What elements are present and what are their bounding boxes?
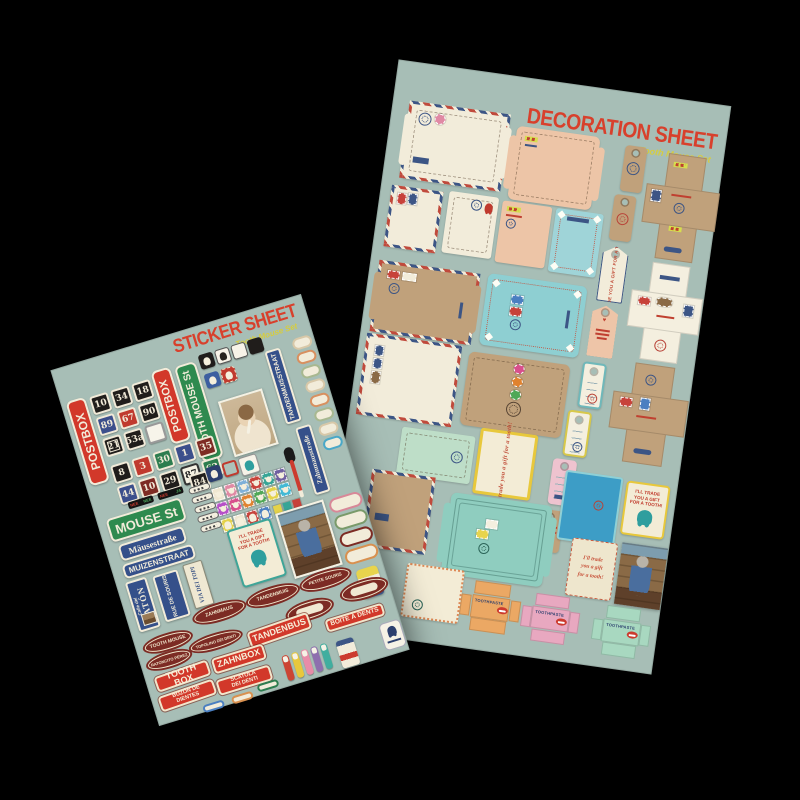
gift-tag-peach: ♥: [586, 304, 619, 359]
tooth-icon: [636, 509, 653, 526]
toothbrush-sticker-row: [281, 643, 334, 682]
number-plate-sticker: 18: [131, 379, 155, 403]
number-plate-sticker: 10: [89, 392, 113, 416]
postmark-stamp-icon: [388, 282, 400, 294]
stamp-icon: [509, 306, 522, 317]
red-frame-sticker: [221, 459, 240, 478]
stamp-icon: [638, 296, 651, 306]
tooth-sticker-teal: [237, 453, 261, 477]
box-template-kraft: [637, 150, 725, 265]
toothpaste-box-orange: TOOTHPASTE: [457, 579, 523, 637]
toothpaste-box-mint: TOOTHPASTE: [589, 603, 653, 661]
number-plate-sticker: 67: [116, 406, 140, 430]
postmark-stamp-icon: [509, 319, 521, 331]
banner-icon: [387, 638, 401, 644]
postmark-stamp-icon: [626, 161, 641, 176]
postmark-stamp-red-icon: [593, 500, 604, 511]
corner-diamond-icon: [573, 290, 581, 298]
plaque-tandenmuis: TANDENMUIS: [246, 581, 300, 611]
number-plate-sticker: 90: [137, 400, 161, 424]
box-flap: [508, 600, 521, 622]
box-template-cream: [622, 259, 707, 366]
baby-photo-sticker: [218, 388, 279, 457]
box-template-kraft-2: [604, 360, 693, 470]
heart-icon: ♥: [591, 316, 618, 326]
envelope-teal-dotted: [479, 273, 588, 358]
blank-square-sticker: [230, 341, 249, 360]
card-cream-yellow-border: I'll trade you a gift for a tooth!: [472, 427, 539, 500]
toothbrush-stamp-icon: [565, 310, 570, 328]
product-image: DECORATION SHEET Tooth Mouse Set: [0, 0, 800, 800]
border-line: [451, 502, 543, 577]
number-plate-sticker: 3: [131, 454, 155, 478]
mouse-stamp-sticker: [224, 483, 238, 499]
toothbrush-stamp-icon: [525, 144, 537, 148]
corner-diamond-icon: [485, 332, 493, 340]
number-plate-sticker: [144, 421, 168, 445]
mouse-stamp-sticker: [265, 486, 279, 502]
number-plate-sticker: 35: [194, 435, 218, 459]
postmark-stamp-icon: [505, 401, 522, 418]
stamp-icon: [374, 345, 384, 356]
mouse-stamp-sticker: [253, 489, 267, 505]
stamp-icon: [372, 358, 382, 369]
envelope-peach: [507, 126, 600, 211]
envelope-kraft-airmail: [369, 260, 480, 345]
tooth-mouse-photo: [614, 542, 668, 610]
address-label-icon: [412, 156, 429, 164]
box-flap: [568, 612, 581, 633]
stamp-icon: [387, 270, 400, 280]
toothbrush-stamp-icon: [458, 302, 463, 318]
corner-diamond-icon: [550, 262, 558, 270]
text-line: [595, 332, 609, 335]
stamp-icon: [639, 397, 651, 410]
tooth-sticker-red: [220, 366, 239, 385]
postmark-stamp-icon: [572, 441, 583, 452]
postmark-stamp-icon: [411, 599, 423, 611]
mouse-stamp-sticker: [228, 497, 242, 513]
card-cream: [441, 191, 499, 259]
mouse-figure: [627, 555, 653, 597]
number-plate-sticker: 21: [102, 434, 126, 458]
mouse-stamp-sticker: [249, 475, 263, 491]
flag-stamp-icon: [476, 529, 489, 540]
stamp-icon: [397, 193, 407, 205]
stamp-icon: [402, 272, 417, 282]
blue-header-label: [567, 216, 589, 223]
number-plate-sticker: 53a: [123, 427, 147, 451]
postmark-stamp-icon: [450, 451, 464, 465]
trade-card-text: I'LL TRADE YOU A GIFT FOR A TOOTH!: [233, 526, 272, 553]
toothpaste-tube-sticker: [335, 637, 360, 669]
card-blue-dotted: [548, 208, 604, 278]
trade-script-text: I'll trade you a gift for a tooth!: [568, 552, 615, 583]
mouse-stamp-sticker: [261, 471, 275, 487]
flag-stamp-icon: [485, 519, 498, 530]
text-line: [597, 337, 607, 340]
tandenbus-label-sticker: TANDENBUS: [246, 612, 312, 649]
number-plate-sticker: 8: [110, 461, 134, 485]
envelope-cream-airmail-large: [356, 333, 462, 428]
stamp-icon: [408, 193, 418, 205]
trade-card-sticker: I'LL TRADE YOU A GIFT FOR A TOOTH!: [226, 518, 288, 589]
gift-tag-yellow: [562, 409, 592, 458]
red-tooth-stamp-icon: [484, 203, 493, 214]
stamp-icon: [650, 189, 662, 202]
card-blue-square: [556, 470, 623, 547]
fold-line: [513, 131, 595, 205]
mouse-figure: [292, 517, 324, 562]
number-plate-sticker: 30: [152, 448, 176, 472]
toothpaste-box-pink: TOOTHPASTE: [518, 591, 582, 647]
round-stamp-icon: [509, 389, 521, 400]
stamp-icon: [620, 397, 633, 408]
mouse-stamp-sticker: [211, 486, 225, 502]
postmark-stamp-red-icon: [616, 212, 630, 226]
boite-a-dents-label-sticker: BOÎTE À DENTS: [324, 603, 385, 633]
gift-tag-teal: [577, 361, 607, 410]
tooth-square-row: [203, 366, 238, 390]
trade-card-decoration: I'LL TRADE YOU A GIFT FOR A TOOTH!: [620, 480, 671, 540]
mouse-stamp-sticker: [278, 482, 292, 498]
mouse-stamp-icon: [370, 371, 381, 384]
round-stamp-icon: [511, 376, 523, 387]
round-stamp-icon: [513, 363, 525, 374]
corner-diamond-icon: [586, 267, 594, 275]
mini-pill-sticker: [231, 691, 254, 705]
card-cream-airmail: [383, 185, 443, 254]
tooth-sticker-outline: [214, 346, 233, 365]
trade-script-text: I'll trade you a gift for a tooth!: [495, 421, 516, 508]
round-stamp-icon: [434, 113, 446, 125]
tooth-icon: [249, 548, 268, 567]
postmark-stamp-icon: [478, 542, 490, 554]
text-line: [596, 329, 610, 332]
corner-diamond-icon: [566, 344, 574, 352]
box-flap: [638, 625, 651, 647]
mouse-stamp-sticker: [273, 467, 287, 483]
trade-script-card: I'll trade you a gift for a tooth!: [565, 537, 619, 601]
corner-diamond-icon: [593, 215, 601, 223]
gift-tag-kraft: [609, 194, 637, 243]
mouse-stamp-sticker: [240, 493, 254, 509]
corner-diamond-icon: [557, 210, 565, 218]
number-plate-sticker: 89: [95, 413, 119, 437]
pill-label-sticker: [322, 434, 345, 451]
yellow-label-icon: [524, 136, 538, 143]
envelope-cream-airmail: [399, 100, 511, 191]
tooth-sticker-blue: [203, 371, 222, 390]
tooth-sticker-navy: [205, 464, 224, 483]
yellow-label-icon: [507, 206, 522, 213]
stamp-icon: [511, 294, 524, 305]
postmark-stamp-icon: [418, 112, 433, 127]
tooth-icon: [386, 625, 398, 637]
gift-tag-kraft: [619, 145, 647, 194]
red-text-icon: [506, 214, 522, 218]
dotted-border: [553, 213, 598, 272]
trade-gift-tag: I'LL TRADE YOU A GIFT FOR A TOOTH: [596, 245, 630, 304]
postmark-stamp-icon: [505, 218, 516, 229]
mini-pill-sticker: [202, 699, 225, 713]
corner-diamond-icon: [492, 279, 500, 287]
number-plate-sticker: 34: [110, 385, 134, 409]
trade-card-text: I'LL TRADE YOU A GIFT FOR A TOOTH!: [629, 488, 665, 510]
postmark-stamp-red-icon: [587, 393, 598, 404]
card-cream-orange-wavy: [400, 563, 465, 625]
card-peach: [494, 200, 552, 268]
blue-label-icon: [374, 513, 389, 522]
tooth-sticker-black: [197, 351, 216, 370]
stamp-icon: [683, 305, 695, 318]
postmark-stamp-icon: [470, 199, 482, 211]
number-plate-sticker: 1: [173, 441, 197, 465]
mouse-stamp-sticker: [236, 479, 250, 495]
